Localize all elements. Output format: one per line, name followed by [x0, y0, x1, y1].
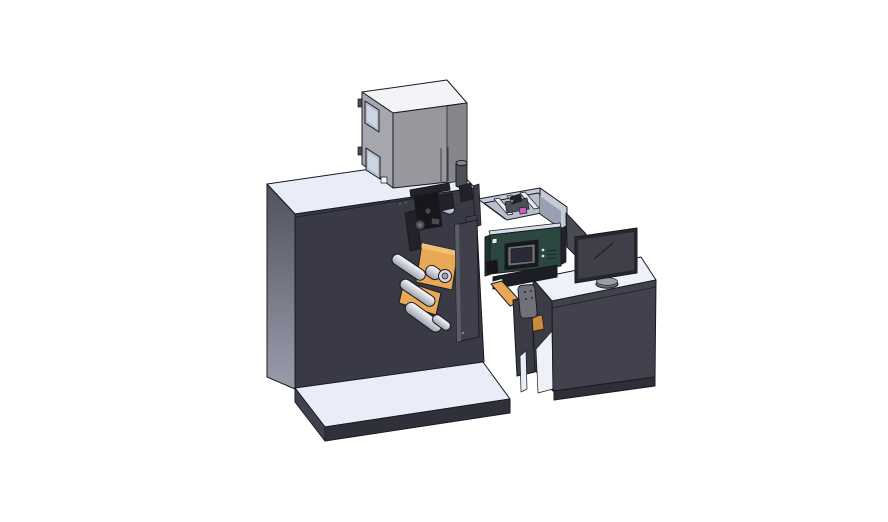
housing-hinge	[358, 147, 362, 155]
head-block	[431, 218, 440, 225]
bridge-inner-trim	[520, 351, 527, 392]
roller-end-hub	[442, 273, 448, 279]
head-motor-hub	[418, 223, 422, 227]
housing-label-plate	[381, 177, 387, 183]
print-head-bracket	[438, 193, 454, 211]
panel-button	[542, 249, 545, 252]
head-knob	[425, 208, 431, 214]
device-dot	[531, 297, 533, 299]
door-screw	[462, 332, 464, 334]
exhaust-cylinder-cap	[456, 160, 467, 165]
magenta-cartridge	[519, 207, 527, 214]
cabinet-rivet	[405, 202, 407, 204]
handheld-device	[518, 284, 538, 318]
cad-render-canvas	[0, 0, 888, 522]
panel-connector	[486, 260, 498, 274]
panel-label	[492, 238, 497, 244]
panel-screen-display	[511, 247, 532, 263]
enclosure-knob	[511, 200, 513, 202]
cad-scene	[0, 0, 888, 522]
cabinet-rivet	[399, 203, 401, 205]
printer-housing	[358, 80, 467, 188]
device-dot	[530, 290, 532, 292]
exhaust-cylinder-body	[456, 163, 467, 187]
housing-hinge	[358, 99, 362, 107]
cabinet-left-face	[267, 184, 295, 389]
device-dot	[524, 291, 526, 293]
device-dot	[525, 298, 527, 300]
panel-button	[542, 255, 545, 258]
edge-fitting	[459, 183, 473, 202]
